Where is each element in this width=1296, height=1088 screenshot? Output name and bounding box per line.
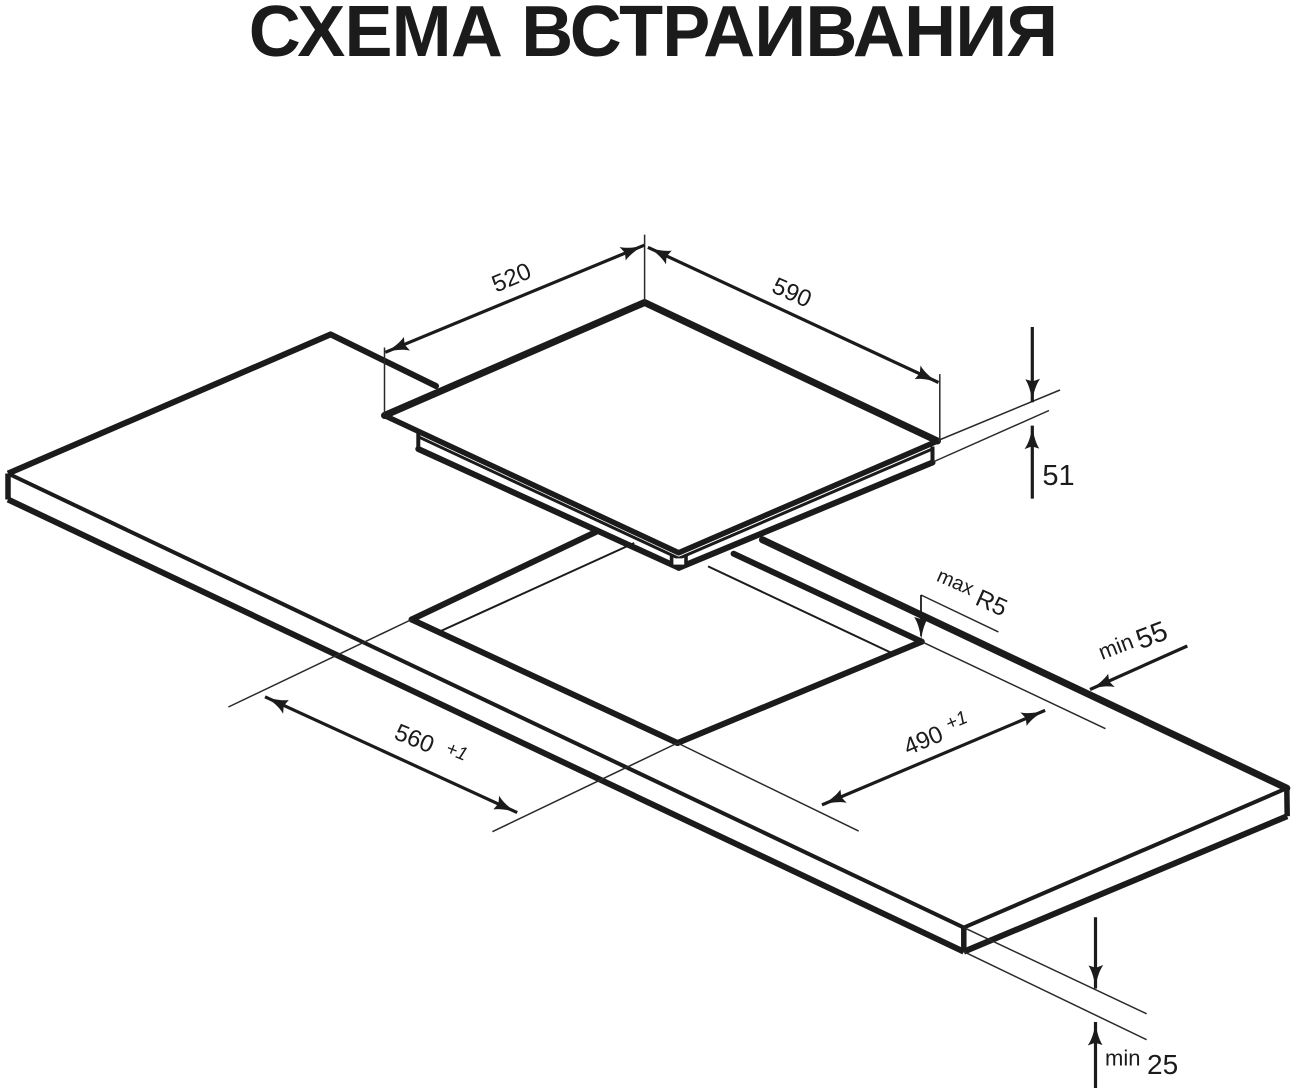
svg-text:51: 51 [1042,460,1074,492]
svg-text:25: 25 [1147,1049,1178,1080]
svg-text:min: min [1105,1046,1140,1071]
